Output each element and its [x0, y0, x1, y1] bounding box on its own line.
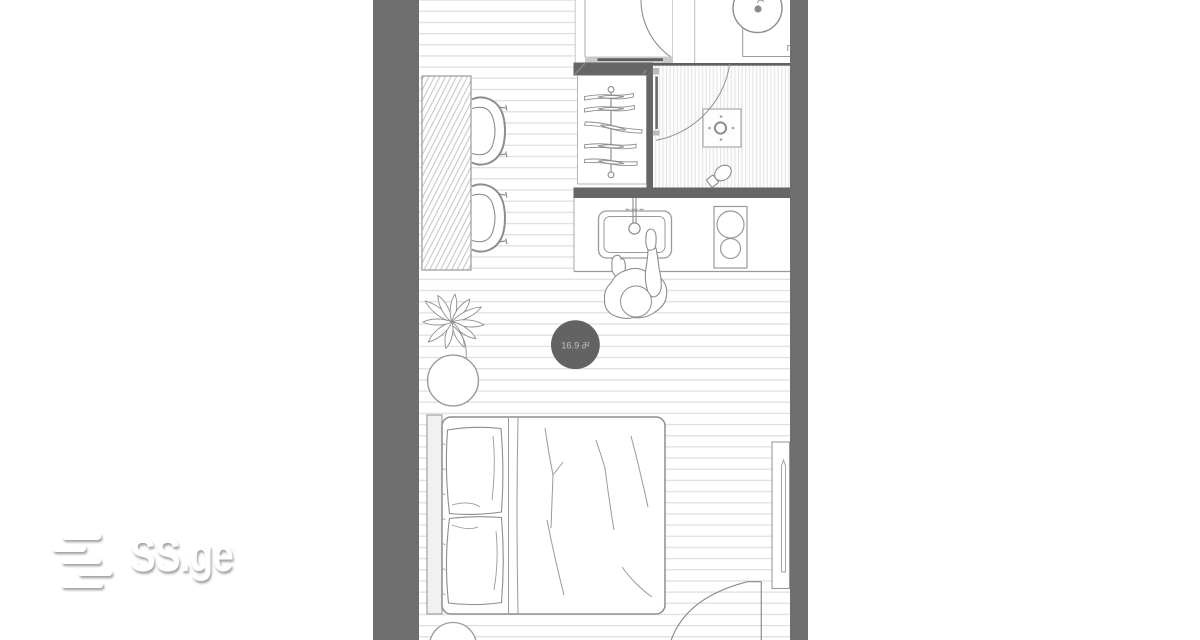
svg-text:16.9 ∂²: 16.9 ∂²: [561, 341, 589, 351]
